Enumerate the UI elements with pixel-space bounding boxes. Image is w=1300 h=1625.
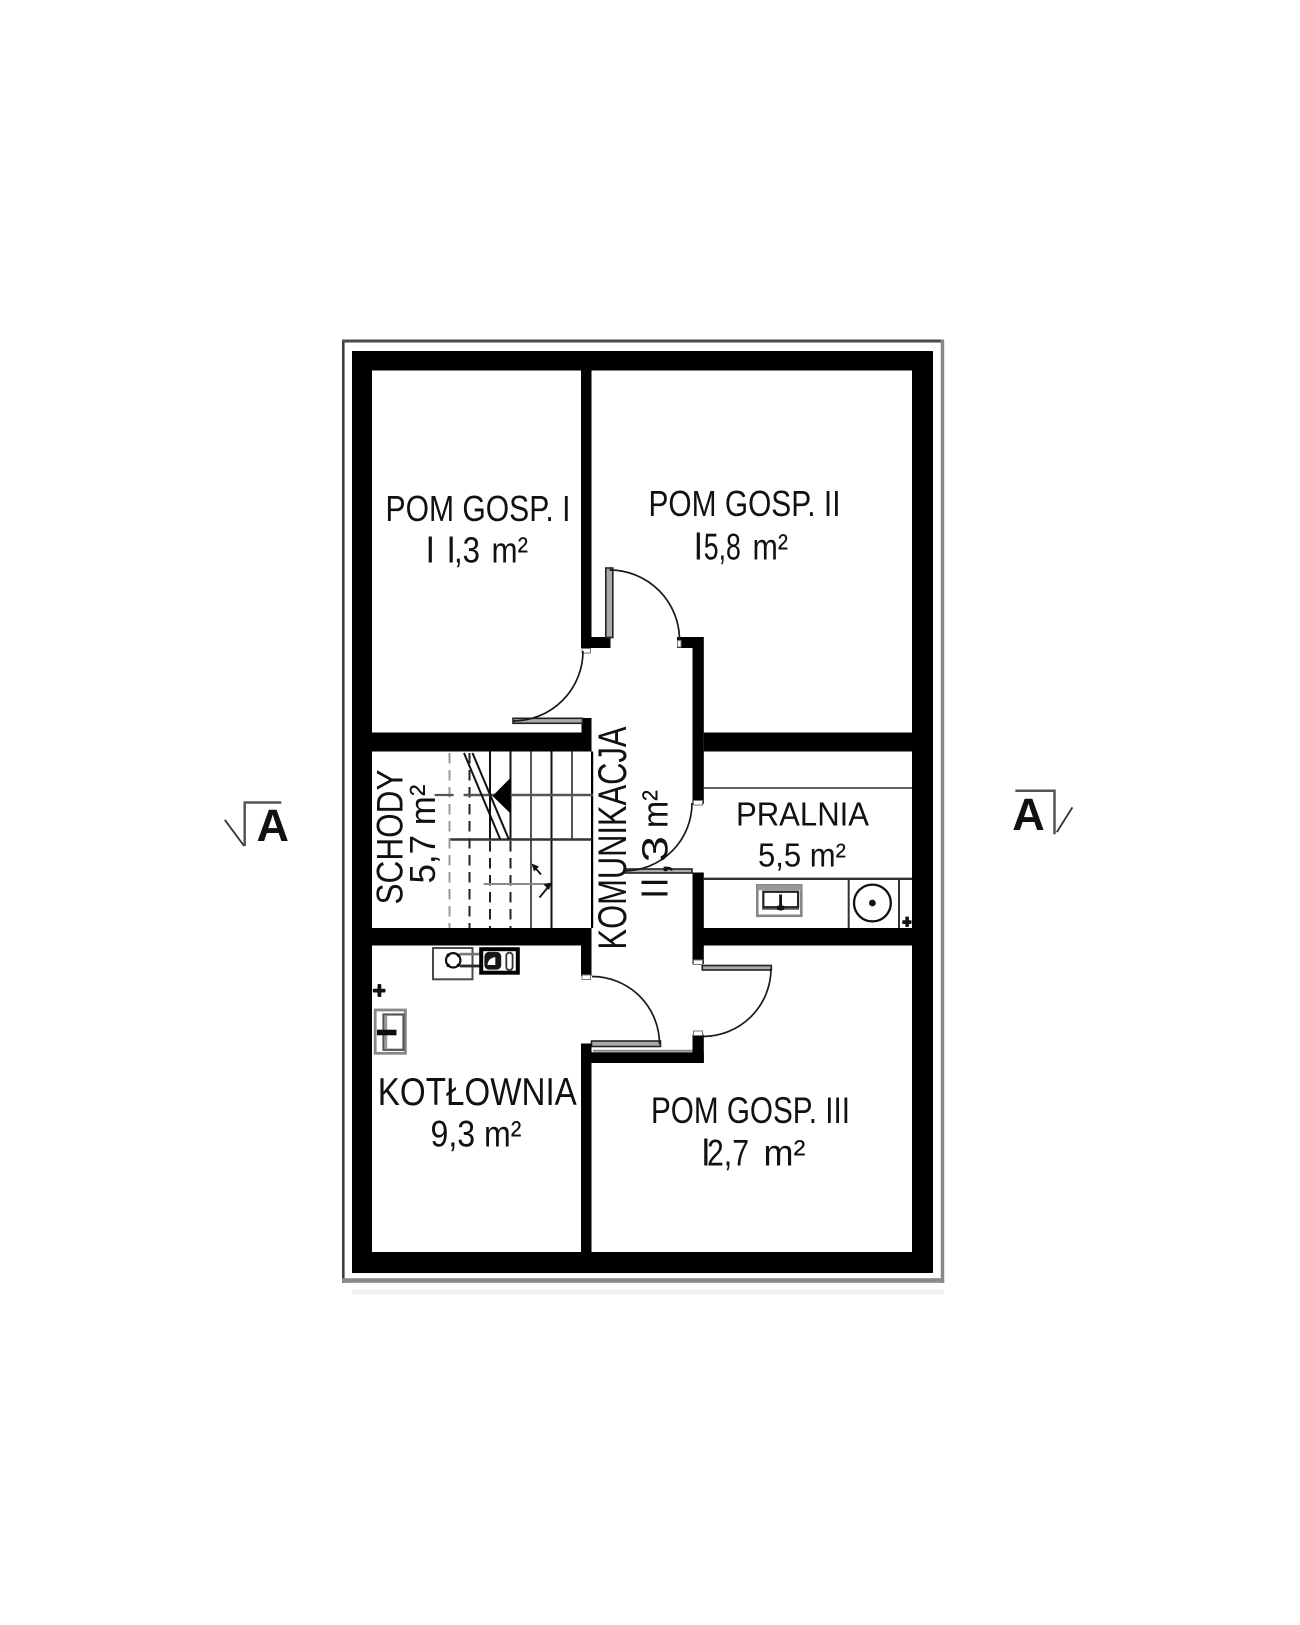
svg-text:ll,3m²: ll,3m²: [635, 790, 676, 898]
svg-text:PRALNIA: PRALNIA: [736, 797, 870, 834]
svg-text:POM GOSP. II: POM GOSP. II: [649, 483, 841, 524]
svg-text:A: A: [1012, 789, 1045, 840]
svg-text:POM GOSP. I: POM GOSP. I: [386, 488, 571, 529]
svg-text:5,7 m²: 5,7 m²: [402, 785, 443, 884]
svg-text:KOTŁOWNIA: KOTŁOWNIA: [378, 1071, 577, 1114]
svg-text:A: A: [256, 800, 289, 851]
svg-text:9,3 m²: 9,3 m²: [431, 1112, 522, 1154]
svg-text:POM GOSP. III: POM GOSP. III: [651, 1089, 850, 1131]
svg-text:5,5 m²: 5,5 m²: [758, 837, 846, 874]
svg-text:KOMUNIKACJA: KOMUNIKACJA: [591, 726, 635, 950]
